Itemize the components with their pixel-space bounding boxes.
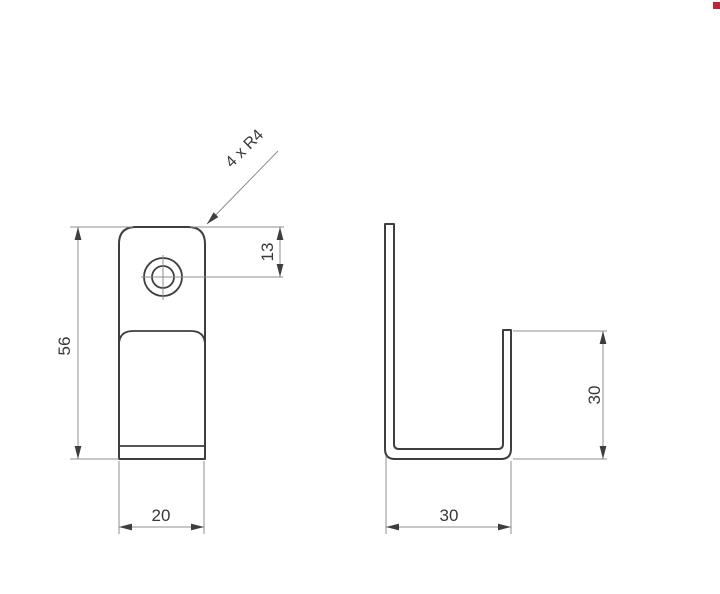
technical-drawing: 56 20 13 4 x R4 30 <box>0 0 720 594</box>
side-view <box>385 224 511 459</box>
front-plate-outline <box>119 227 205 459</box>
dimension-value-13: 13 <box>258 243 277 262</box>
dimension-value-30-vertical: 30 <box>585 386 604 405</box>
leader-value-4xR4: 4 x R4 <box>222 126 267 171</box>
dimension-depth: 30 <box>386 456 511 534</box>
dimension-value-56: 56 <box>55 337 74 356</box>
dimension-front-height: 56 <box>55 227 133 459</box>
red-corner-mark <box>713 2 720 9</box>
dimension-value-30-horizontal: 30 <box>440 506 459 525</box>
leader-corner-radius: 4 x R4 <box>207 126 278 224</box>
drawing-canvas: 56 20 13 4 x R4 30 <box>0 0 720 594</box>
dimension-front-width: 20 <box>119 461 204 534</box>
dimension-value-20: 20 <box>152 506 171 525</box>
side-profile-outline <box>385 224 511 459</box>
front-bend-line <box>119 331 205 345</box>
dimension-hook-height: 30 <box>513 331 607 459</box>
